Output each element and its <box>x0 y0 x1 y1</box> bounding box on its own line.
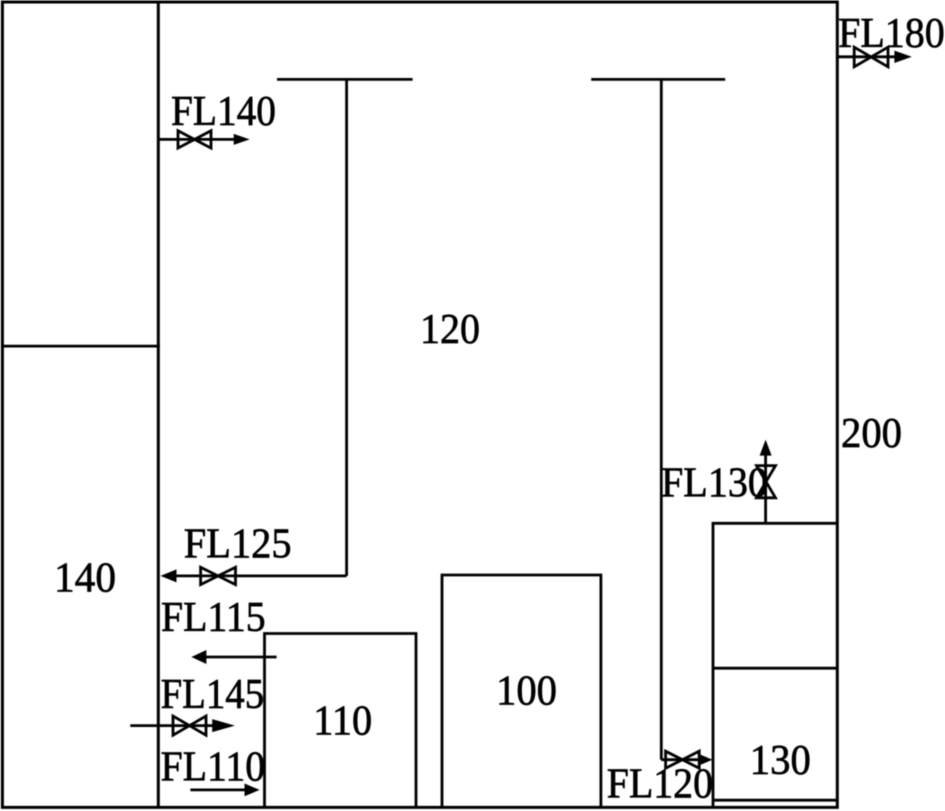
svg-text:110: 110 <box>313 697 372 744</box>
svg-text:120: 120 <box>420 306 480 353</box>
svg-text:100: 100 <box>496 667 557 714</box>
svg-text:FL125: FL125 <box>184 520 292 567</box>
svg-text:FL120: FL120 <box>607 760 713 807</box>
svg-text:200: 200 <box>841 409 902 456</box>
svg-text:140: 140 <box>54 554 116 601</box>
svg-text:FL145: FL145 <box>161 671 265 718</box>
svg-text:FL110: FL110 <box>161 743 266 790</box>
svg-text:130: 130 <box>750 736 811 783</box>
svg-text:FL115: FL115 <box>161 593 266 640</box>
svg-text:FL180: FL180 <box>838 9 945 56</box>
svg-text:FL140: FL140 <box>171 87 276 134</box>
svg-text:FL130: FL130 <box>661 459 768 506</box>
